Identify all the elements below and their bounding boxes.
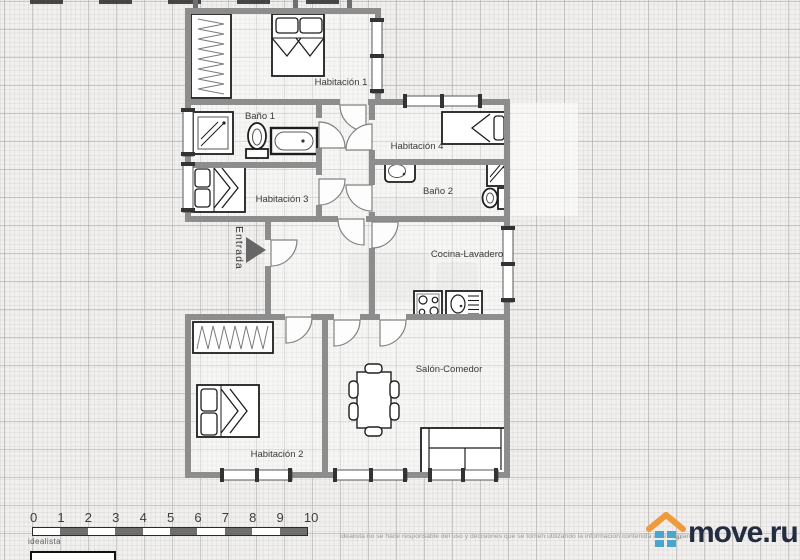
sofa [421,428,509,473]
wall-segment [185,8,191,105]
scale-tick: 8 [249,510,276,525]
wall-segment [185,8,381,14]
wall-segment [185,99,340,105]
wall-segment [265,216,271,240]
wall-segment [185,162,322,168]
wall-segment [369,150,375,185]
wall-segment [185,320,191,478]
room-label-bano-2: Baño 2 [398,186,478,197]
window [333,468,407,482]
idealista-brand: idealista [28,537,61,546]
scale-segment [225,528,252,535]
scale-segment [143,528,170,535]
wall-segment [185,314,285,320]
window [428,468,498,482]
scale-tick: 5 [167,510,194,525]
wall-segment [406,314,510,320]
room-label-salon-comedor: Salón-Comedor [379,364,519,375]
room-label-bano-1: Baño 1 [220,111,300,122]
floorplan-canvas: Habitación 1 Baño 1 Habitación 3 Habitac… [0,0,800,560]
room-label-habitacion-4: Habitación 4 [357,141,477,152]
wall-segment [316,148,322,175]
logo-text: move.ru [688,518,798,548]
scale-segment [197,528,224,535]
move-ru-logo: move.ru [646,512,798,548]
wall-segment [316,105,322,118]
bathtub-icon [271,128,317,154]
window [403,94,482,108]
scale-tick: 1 [57,510,84,525]
scale-segment [115,528,142,535]
scale-tick: 6 [194,510,221,525]
double-bed [272,14,324,76]
scale-segment [60,528,87,535]
scale-bar [32,527,308,536]
scale-tick: 3 [112,510,139,525]
wall-segment [375,159,510,165]
wardrobe-icon [191,14,231,98]
scale-tick: 2 [85,510,112,525]
toilet-icon [246,123,268,158]
scale-tick: 4 [140,510,167,525]
scale-segment [280,528,307,535]
wall-segment [504,320,510,478]
wall-segment [265,266,271,320]
toilet-icon [483,188,507,209]
wall-segment [369,248,375,320]
cutoff-box [30,551,116,560]
scale-tick: 7 [222,510,249,525]
window [220,468,292,482]
wall-segment [504,105,510,222]
window [181,162,195,212]
wardrobe-icon [193,322,273,353]
wall-segment [360,314,380,320]
house-icon [646,512,686,548]
wall-segment [311,314,334,320]
scale-segment [33,528,60,535]
room-label-habitacion-1: Habitación 1 [281,77,401,88]
entrance-arrow-icon [246,237,266,263]
window [501,226,515,302]
scale-segment [252,528,279,535]
scale-tick: 9 [277,510,304,525]
single-bed [442,112,508,144]
scale-segment [88,528,115,535]
room-label-habitacion-2: Habitación 2 [217,449,337,460]
window [181,108,195,156]
room-label-habitacion-3: Habitación 3 [222,194,342,205]
wall-segment [369,105,375,120]
room-label-cocina-lavadero: Cocina-Lavadero [397,249,537,260]
double-bed [197,385,259,437]
wall-segment [185,216,338,222]
entrance-label: Entrada [229,226,245,298]
scale-ruler-numbers: 0 1 2 3 4 5 6 7 8 9 10 [30,510,331,525]
disclaimer-text: idealista no se hace responsable del uso… [340,533,690,540]
scale-segment [170,528,197,535]
wall-segment [366,216,510,222]
scale-tick: 10 [304,510,331,525]
scale-tick: 0 [30,510,57,525]
